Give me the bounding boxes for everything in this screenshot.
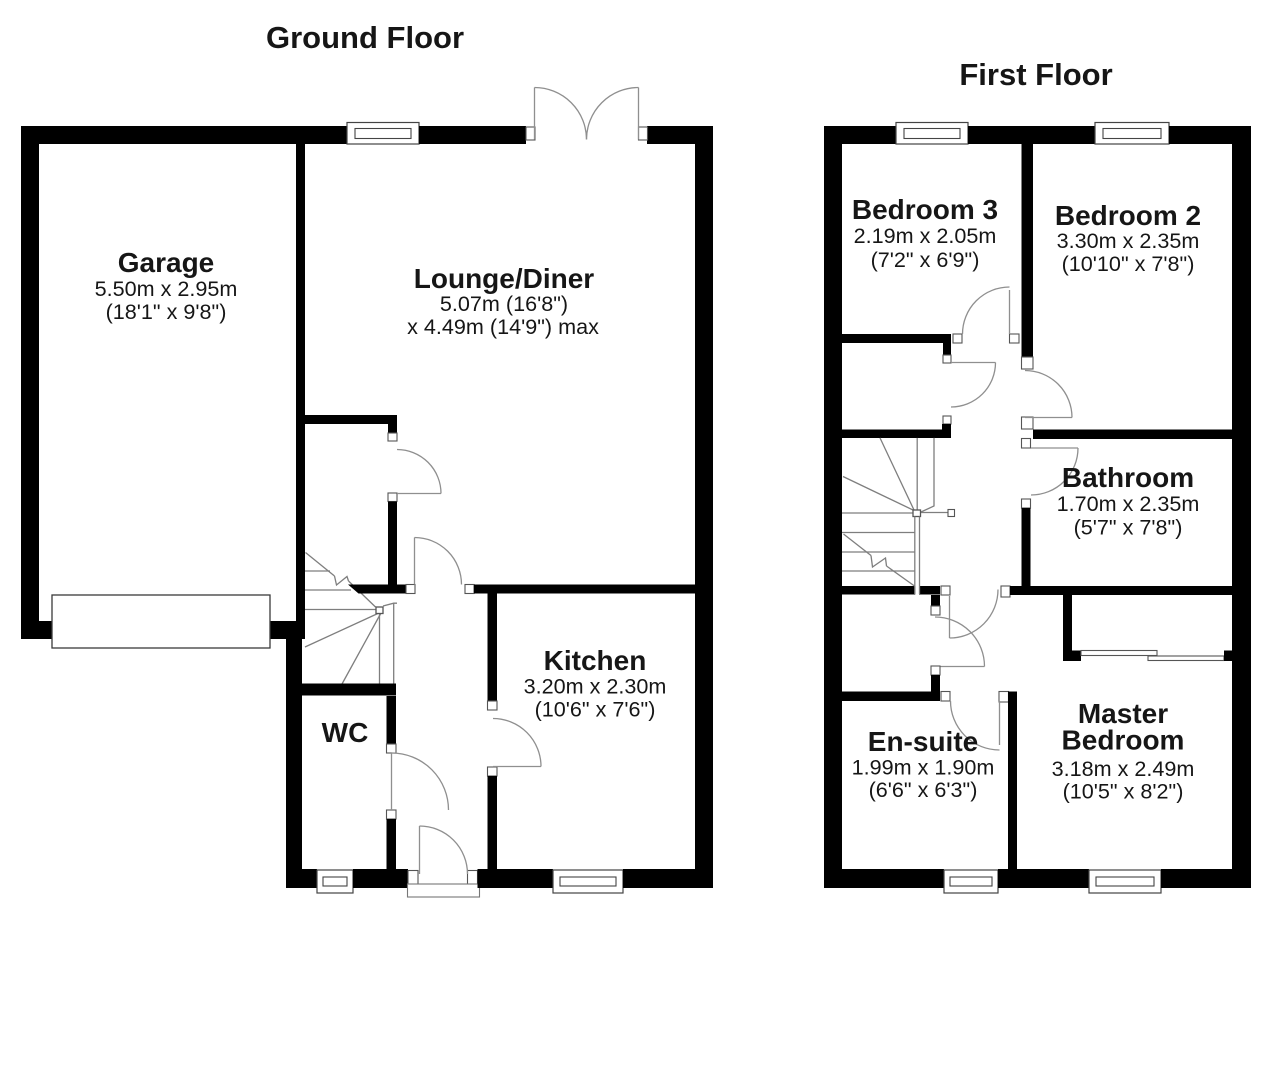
svg-text:En-suite: En-suite bbox=[868, 726, 978, 757]
svg-text:WC: WC bbox=[322, 717, 369, 748]
svg-text:(18'1" x 9'8"): (18'1" x 9'8") bbox=[106, 299, 227, 324]
svg-text:Kitchen: Kitchen bbox=[544, 645, 647, 676]
svg-text:Bedroom 2: Bedroom 2 bbox=[1055, 200, 1201, 231]
svg-text:Garage: Garage bbox=[118, 247, 215, 278]
svg-text:3.18m x 2.49m: 3.18m x 2.49m bbox=[1052, 756, 1195, 781]
svg-text:3.20m x 2.30m: 3.20m x 2.30m bbox=[524, 674, 667, 699]
svg-text:(6'6" x 6'3"): (6'6" x 6'3") bbox=[869, 777, 978, 802]
svg-text:(5'7" x 7'8"): (5'7" x 7'8") bbox=[1074, 515, 1183, 540]
svg-text:Lounge/Diner: Lounge/Diner bbox=[414, 263, 595, 294]
svg-text:Bedroom: Bedroom bbox=[1062, 725, 1185, 756]
svg-text:(10'5" x 8'2"): (10'5" x 8'2") bbox=[1063, 779, 1184, 804]
svg-text:x 4.49m (14'9") max: x 4.49m (14'9") max bbox=[407, 314, 599, 339]
svg-text:(10'6" x 7'6"): (10'6" x 7'6") bbox=[535, 697, 656, 722]
svg-text:5.50m x 2.95m: 5.50m x 2.95m bbox=[95, 276, 238, 301]
svg-text:1.99m x 1.90m: 1.99m x 1.90m bbox=[852, 755, 995, 780]
svg-text:5.07m (16'8"): 5.07m (16'8") bbox=[440, 291, 568, 316]
svg-text:3.30m x 2.35m: 3.30m x 2.35m bbox=[1057, 228, 1200, 253]
svg-text:Bathroom: Bathroom bbox=[1062, 462, 1194, 493]
svg-text:Ground Floor: Ground Floor bbox=[266, 20, 464, 55]
svg-text:2.19m x 2.05m: 2.19m x 2.05m bbox=[854, 223, 997, 248]
svg-text:(10'10" x 7'8"): (10'10" x 7'8") bbox=[1062, 251, 1195, 276]
svg-text:Bedroom 3: Bedroom 3 bbox=[852, 194, 998, 225]
svg-text:1.70m x 2.35m: 1.70m x 2.35m bbox=[1057, 491, 1200, 516]
svg-text:First Floor: First Floor bbox=[959, 57, 1112, 92]
svg-text:(7'2" x 6'9"): (7'2" x 6'9") bbox=[871, 247, 980, 272]
